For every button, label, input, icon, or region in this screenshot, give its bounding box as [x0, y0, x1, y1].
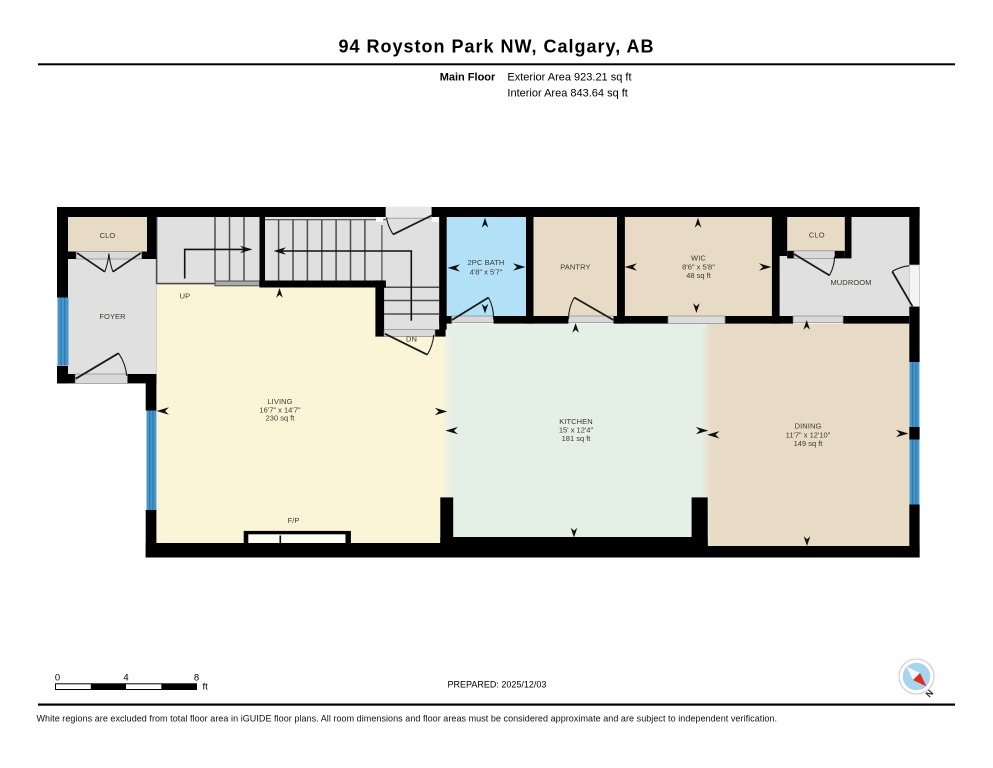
svg-text:181 sq ft: 181 sq ft: [562, 434, 592, 443]
svg-text:Exterior Area 923.21 sq ft: Exterior Area 923.21 sq ft: [507, 71, 631, 83]
svg-text:8: 8: [194, 673, 199, 684]
svg-text:4: 4: [123, 673, 128, 684]
svg-text:CLO: CLO: [809, 231, 825, 240]
svg-text:0: 0: [55, 673, 60, 684]
svg-text:PANTRY: PANTRY: [560, 262, 590, 271]
svg-text:149 sq ft: 149 sq ft: [794, 439, 824, 448]
svg-text:94 Royston Park NW, Calgary, A: 94 Royston Park NW, Calgary, AB: [338, 37, 654, 57]
svg-text:Main Floor: Main Floor: [440, 71, 496, 83]
svg-text:PREPARED: 2025/12/03: PREPARED: 2025/12/03: [448, 680, 547, 690]
svg-text:FOYER: FOYER: [99, 312, 126, 321]
svg-text:CLO: CLO: [100, 231, 116, 240]
svg-text:Interior Area 843.64 sq ft: Interior Area 843.64 sq ft: [507, 87, 627, 99]
svg-text:MUDROOM: MUDROOM: [830, 278, 871, 287]
svg-text:N: N: [924, 688, 936, 700]
svg-text:48 sq ft: 48 sq ft: [686, 271, 712, 280]
svg-text:2PC BATH: 2PC BATH: [468, 258, 505, 267]
svg-text:White regions are excluded fro: White regions are excluded from total fl…: [37, 713, 778, 723]
svg-text:4'8" x 5'7": 4'8" x 5'7": [470, 267, 503, 276]
svg-text:DN: DN: [406, 335, 417, 344]
svg-text:UP: UP: [180, 291, 191, 300]
svg-text:230 sq ft: 230 sq ft: [266, 414, 296, 423]
svg-text:DINING: DINING: [795, 421, 822, 430]
svg-text:F/P: F/P: [288, 516, 300, 525]
svg-text:ft: ft: [203, 682, 209, 693]
svg-text:WIC: WIC: [691, 254, 706, 263]
